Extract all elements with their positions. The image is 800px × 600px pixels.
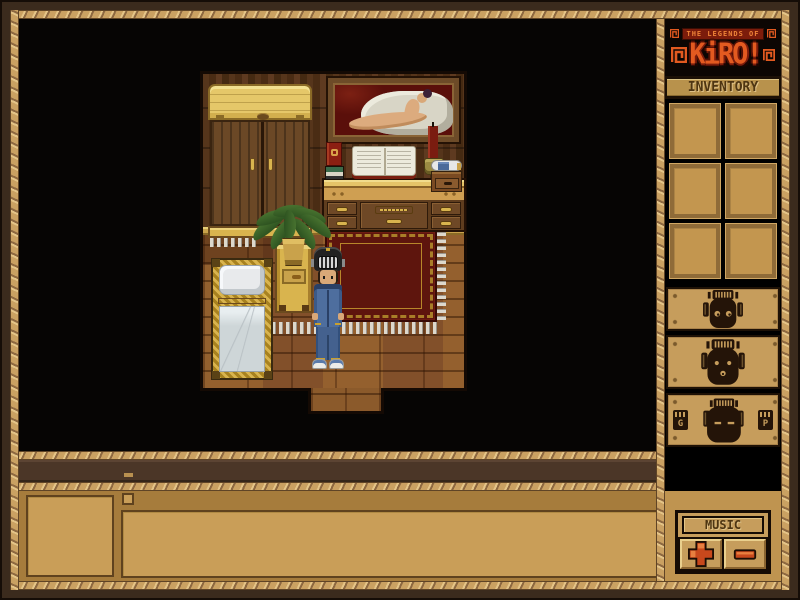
helmet-dot xyxy=(326,248,330,251)
character-hand xyxy=(312,313,318,320)
box-drawer xyxy=(435,178,459,189)
tiki-mask-eyes-closed-icon xyxy=(693,396,753,444)
sidebar-divider-rope xyxy=(656,19,665,581)
card-stripes xyxy=(760,412,771,417)
pants-seam xyxy=(327,335,329,360)
message-text-area[interactable] xyxy=(121,510,669,578)
plus-icon xyxy=(688,541,714,567)
cuff-stitch xyxy=(315,323,321,325)
music-label: MUSIC xyxy=(705,518,741,532)
bottle-cork xyxy=(457,163,461,170)
player-character xyxy=(306,247,350,369)
candle[interactable] xyxy=(428,126,438,159)
frame-rope-top xyxy=(10,10,790,19)
rug-fringe-bottom xyxy=(272,322,440,334)
rug-inner-border xyxy=(340,243,422,309)
logo-title-row: KiRO! xyxy=(671,42,774,68)
tiki-mask-small-eyes-mouth-icon xyxy=(694,339,752,385)
music-volume-down-button[interactable] xyxy=(724,539,766,569)
logo-title: KiRO! xyxy=(689,41,760,68)
inventory-slot[interactable] xyxy=(725,163,777,219)
strip-notch xyxy=(124,473,133,477)
desk-center-drawer[interactable] xyxy=(360,202,428,229)
red-book[interactable] xyxy=(326,142,342,166)
painting-figure-hair xyxy=(423,89,432,98)
denim-jacket xyxy=(314,284,342,327)
inventory-slot[interactable] xyxy=(669,223,721,279)
drawer-handle xyxy=(440,221,452,226)
rug-fringe-right xyxy=(437,232,446,320)
drawer-box[interactable] xyxy=(431,171,462,192)
bottle-label xyxy=(438,162,449,170)
drawer-handle xyxy=(336,207,348,212)
desk-drawer[interactable] xyxy=(431,216,461,229)
desk-drawer[interactable] xyxy=(431,202,461,215)
inventory-label: INVENTORY xyxy=(688,80,758,95)
tiki-mask-eyes-open-icon xyxy=(695,290,751,328)
jacket-zipper xyxy=(327,290,329,327)
music-label-bar: MUSIC xyxy=(682,516,764,534)
mask-button-1[interactable] xyxy=(666,287,780,331)
card-left: G xyxy=(673,410,688,430)
character-eye xyxy=(331,276,333,279)
spiral-icon xyxy=(763,49,775,61)
character-hand xyxy=(338,313,344,320)
denim-pants xyxy=(316,327,340,360)
blanket xyxy=(219,306,265,372)
room xyxy=(200,71,467,391)
speaker-portrait-box xyxy=(26,495,114,577)
minus-icon xyxy=(732,541,758,567)
music-panel: MUSIC xyxy=(675,510,771,574)
drawer-handle xyxy=(440,207,452,212)
open-book[interactable] xyxy=(352,146,416,176)
wardrobe-knob xyxy=(257,113,269,120)
sneaker-right xyxy=(329,359,344,369)
inventory-slot[interactable] xyxy=(725,223,777,279)
sidebar: THE LEGENDS OF KiRO! INVENTORY xyxy=(665,19,781,581)
mask-button-2[interactable] xyxy=(666,335,780,389)
drawer-plate xyxy=(375,206,413,214)
frame-rope-left xyxy=(10,10,19,590)
helmet-flap xyxy=(311,259,314,267)
card-right: P xyxy=(758,410,773,430)
character-eye xyxy=(323,276,325,279)
card-letter: P xyxy=(763,418,768,430)
music-buttons xyxy=(678,537,768,571)
mask-button-3[interactable]: G P xyxy=(666,393,780,447)
wardrobe-handle-right xyxy=(268,158,273,171)
nightstand-foot xyxy=(279,305,286,311)
wardrobe-handle-left xyxy=(250,158,255,171)
inventory-slot[interactable] xyxy=(669,103,721,159)
panel-mini-toggle[interactable] xyxy=(122,493,134,505)
game-window: THE LEGENDS OF KiRO! INVENTORY xyxy=(0,0,800,600)
spiral-icon xyxy=(670,29,679,38)
bed-corner xyxy=(212,371,220,379)
potion-bottle[interactable] xyxy=(431,160,462,171)
candle-wick xyxy=(432,122,434,127)
inventory-slot[interactable] xyxy=(669,163,721,219)
helmet-grill xyxy=(318,256,338,269)
nightstand-drawer[interactable] xyxy=(282,269,306,284)
book-text-lines xyxy=(357,151,381,171)
frame-rope-right xyxy=(781,10,790,590)
wardrobe-top xyxy=(208,84,312,120)
drawer-handle xyxy=(336,221,348,226)
bed-divider xyxy=(218,298,266,304)
plant-pot xyxy=(280,238,307,266)
wardrobe-detail xyxy=(296,115,304,118)
card-letter: G xyxy=(678,418,683,430)
bed-corner xyxy=(212,259,220,267)
book-stack[interactable] xyxy=(325,166,344,180)
message-panel xyxy=(19,491,656,581)
game-viewport[interactable] xyxy=(19,19,656,451)
doorway[interactable] xyxy=(308,388,384,414)
music-area: MUSIC xyxy=(665,491,781,581)
cuff-stitch xyxy=(335,323,341,325)
inventory-header: INVENTORY xyxy=(665,76,781,99)
nightstand-handle xyxy=(292,275,301,279)
book-symbol xyxy=(331,149,338,156)
pillow xyxy=(219,265,265,295)
helmet-flap xyxy=(342,259,345,267)
book-crease xyxy=(384,148,386,175)
drawer-handle xyxy=(386,219,402,224)
inventory-slot[interactable] xyxy=(725,103,777,159)
bed-corner xyxy=(264,371,272,379)
card-stripes xyxy=(675,412,686,417)
spiral-icon xyxy=(767,29,776,38)
bed[interactable] xyxy=(211,258,273,380)
sneaker-left xyxy=(312,359,327,369)
music-volume-up-button[interactable] xyxy=(680,539,722,569)
box-handle xyxy=(444,182,452,185)
grill-helmet xyxy=(314,247,342,271)
framed-painting[interactable] xyxy=(328,78,459,142)
game-logo: THE LEGENDS OF KiRO! xyxy=(665,19,781,76)
book-text-lines xyxy=(387,151,411,171)
wardrobe-detail xyxy=(216,115,224,118)
inventory-grid xyxy=(665,99,781,283)
frame-rope-bottom xyxy=(10,581,790,590)
spiral-icon xyxy=(671,47,687,63)
character-face xyxy=(318,270,338,284)
